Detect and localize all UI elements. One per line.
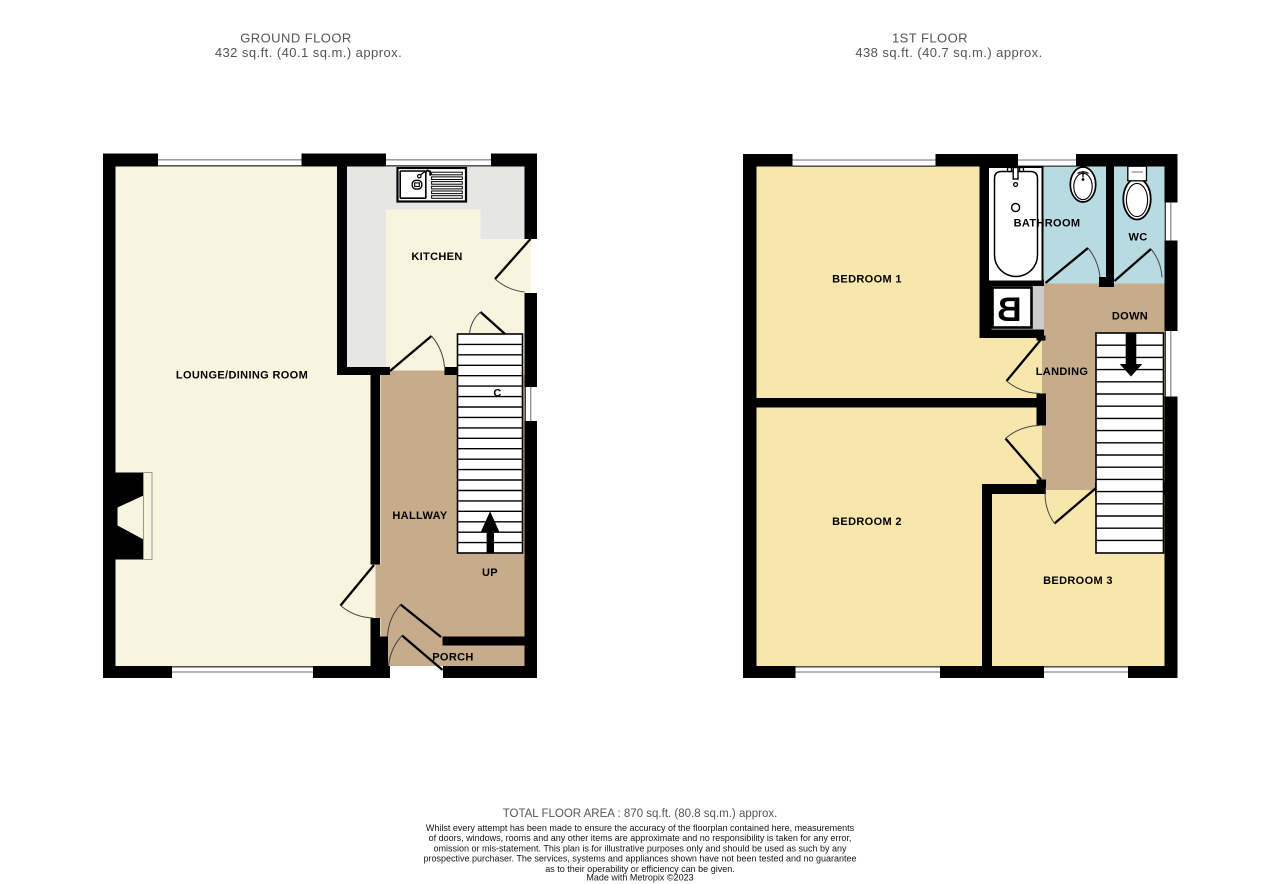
svg-text:Whilst every attempt has been: Whilst every attempt has been made to en…: [426, 823, 855, 833]
svg-text:1ST FLOOR: 1ST FLOOR: [892, 31, 968, 46]
svg-text:DOWN: DOWN: [1112, 311, 1148, 323]
svg-text:omission or mis-statement. Thi: omission or mis-statement. This plan is …: [433, 843, 847, 853]
svg-text:PORCH: PORCH: [432, 652, 473, 664]
svg-text:prospective purchaser. The ser: prospective purchaser. The services, sys…: [423, 854, 856, 864]
svg-text:Made with Metropix ©2023: Made with Metropix ©2023: [586, 873, 693, 883]
svg-text:LOUNGE/DINING ROOM: LOUNGE/DINING ROOM: [176, 370, 308, 382]
svg-text:432 sq.ft. (40.1 sq.m.) approx: 432 sq.ft. (40.1 sq.m.) approx.: [215, 45, 402, 60]
svg-text:BATHROOM: BATHROOM: [1014, 218, 1081, 230]
svg-text:WC: WC: [1128, 232, 1147, 244]
svg-text:BEDROOM 2: BEDROOM 2: [832, 516, 902, 528]
svg-text:C: C: [493, 388, 501, 400]
svg-text:UP: UP: [482, 567, 498, 579]
svg-text:of doors, windows, rooms and a: of doors, windows, rooms and any other i…: [429, 833, 852, 843]
svg-text:GROUND FLOOR: GROUND FLOOR: [240, 31, 352, 46]
svg-text:B: B: [997, 291, 1022, 329]
svg-text:438 sq.ft. (40.7 sq.m.) approx: 438 sq.ft. (40.7 sq.m.) approx.: [855, 45, 1042, 60]
svg-text:TOTAL FLOOR AREA : 870 sq.ft.: TOTAL FLOOR AREA : 870 sq.ft. (80.8 sq.m…: [503, 808, 778, 820]
svg-text:LANDING: LANDING: [1036, 366, 1089, 378]
svg-text:KITCHEN: KITCHEN: [411, 251, 462, 263]
svg-text:HALLWAY: HALLWAY: [392, 510, 448, 522]
svg-text:BEDROOM 3: BEDROOM 3: [1043, 575, 1113, 587]
svg-text:BEDROOM 1: BEDROOM 1: [832, 274, 902, 286]
